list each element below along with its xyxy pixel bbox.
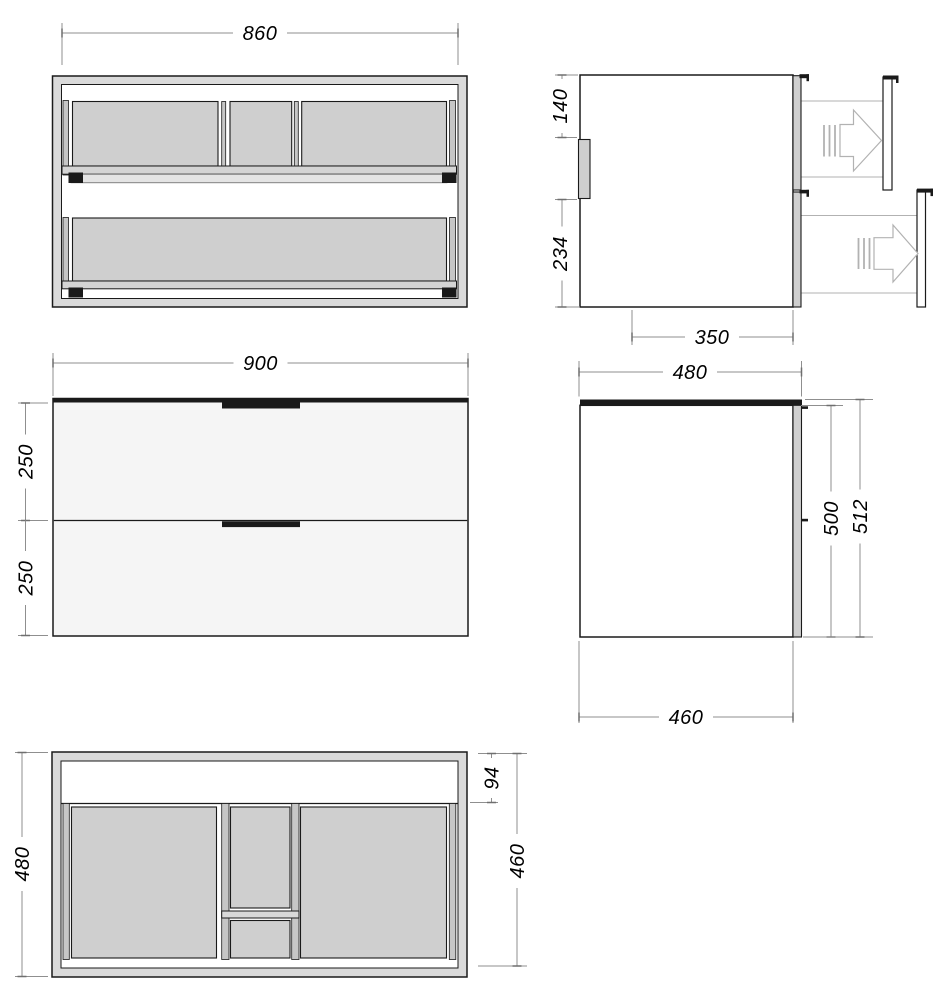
- upper-drawer-panel-right: [302, 102, 447, 167]
- dim-tick: [827, 405, 836, 407]
- dim-tick: [792, 333, 794, 342]
- dim-label: 512: [850, 499, 872, 534]
- front-edge-lower: [793, 192, 801, 307]
- dim-label-group: 480: [12, 837, 34, 891]
- cabinet-drawing: 860 140: [0, 0, 944, 1007]
- dim-tick: [558, 306, 567, 308]
- slide-bracket: [442, 288, 457, 298]
- arrow-speed-lines: [859, 238, 870, 269]
- dim-tick: [61, 29, 63, 38]
- plan-panel-right: [301, 807, 447, 958]
- cap-hook: [931, 189, 934, 197]
- dim-tick: [18, 752, 27, 754]
- dim-side-overall-depth: 480: [578, 361, 802, 397]
- dim-label-group: 250: [16, 551, 38, 605]
- extended-front-lower: [917, 190, 926, 307]
- front-edge-upper: [793, 76, 801, 190]
- upper-drawer-panel-center: [230, 102, 292, 167]
- dim-front-open-width: 860: [61, 23, 459, 65]
- dim-label-group: 500: [821, 492, 843, 546]
- dim-label: 900: [243, 353, 278, 375]
- dim-tick: [467, 359, 469, 368]
- lower-handle-notch: [222, 521, 300, 527]
- dim-tick: [631, 333, 633, 342]
- center-cross-divider: [222, 911, 299, 918]
- dim-tick: [792, 713, 794, 722]
- dim-label-group: 234: [550, 227, 572, 281]
- slide-bracket: [69, 288, 84, 298]
- dim-label-group: 512: [850, 490, 872, 544]
- upper-handle-notch: [222, 402, 300, 408]
- dim-label: 350: [695, 327, 730, 349]
- dim-tick: [578, 368, 580, 377]
- dim-label: 94: [482, 766, 504, 789]
- lower-drawer-panel: [73, 218, 447, 281]
- dim-label-group: 250: [16, 435, 38, 489]
- dim-side-body-depth: 460: [578, 641, 794, 729]
- dim-label: 480: [673, 362, 708, 384]
- dim-front-overall-width: 900: [52, 353, 469, 396]
- dim-tick: [513, 965, 522, 967]
- countertop-slab: [580, 400, 802, 406]
- drawer-slide-rail: [450, 218, 456, 289]
- dim-label-group: 140: [550, 79, 572, 133]
- upper-drawer-rail: [62, 166, 457, 174]
- countertop-edge: [53, 399, 468, 403]
- front-view-open: 860: [53, 23, 468, 307]
- dim-plan-overall-depth: 480: [12, 752, 48, 978]
- dim-tick: [801, 368, 803, 377]
- drawer-slide-rail: [63, 101, 69, 176]
- dim-tick: [578, 713, 580, 722]
- dim-label: 460: [507, 844, 529, 879]
- plan-panel-left: [72, 807, 217, 958]
- dim-label: 500: [821, 501, 843, 536]
- dim-side-extended-upper: 140: [550, 74, 578, 138]
- cabinet-front: [53, 399, 468, 637]
- dim-label: 860: [243, 23, 278, 45]
- slide-bracket: [442, 173, 457, 184]
- dim-tick: [21, 402, 30, 404]
- dim-tick: [52, 359, 54, 368]
- front-lip-mid: [802, 519, 809, 522]
- dim-plan-front-rail: 94: [470, 753, 527, 804]
- dim-tick: [558, 137, 567, 139]
- arrow-icon: [874, 225, 918, 282]
- dim-side-extended-lower: 234: [550, 199, 580, 308]
- front-lip-upper: [802, 406, 809, 409]
- cap-hook: [896, 76, 899, 84]
- cabinet-side-outline: [580, 75, 793, 307]
- cabinet-side-outline: [580, 405, 793, 637]
- dim-label: 480: [12, 847, 34, 882]
- dim-label: 234: [550, 236, 572, 272]
- dim-tick: [487, 802, 496, 804]
- dim-label: 460: [669, 707, 704, 729]
- slide-bracket: [69, 173, 84, 184]
- dim-tick: [856, 399, 865, 401]
- side-rail: [449, 804, 456, 960]
- center-divider-rail: [222, 804, 229, 960]
- arrow-icon: [840, 110, 882, 171]
- pull-out-arrow-lower: [859, 225, 919, 282]
- dim-tick: [856, 636, 865, 638]
- top-lip-hook: [807, 74, 810, 81]
- dim-label-group: 460: [507, 834, 529, 888]
- dim-label: 250: [16, 444, 38, 480]
- dim-tick: [21, 635, 30, 637]
- dim-tick: [558, 199, 567, 201]
- dim-label: 250: [16, 561, 38, 597]
- side-view-extended: 140 234 350: [550, 74, 933, 349]
- side-rail: [63, 804, 69, 960]
- upper-drawer-slide-band: [71, 174, 447, 183]
- mid-lip-hook: [807, 190, 810, 197]
- technical-drawing-canvas: 860 140: [0, 0, 944, 1007]
- upper-drawer-panel-left: [73, 102, 219, 167]
- dim-tick: [558, 74, 567, 76]
- dim-tick: [513, 753, 522, 755]
- dim-front-upper-drawer: 250: [16, 402, 49, 521]
- dim-front-lower-drawer: 250: [16, 521, 49, 637]
- drawer-front-edge: [793, 405, 802, 637]
- dim-tick: [487, 753, 496, 755]
- center-divider-rail: [292, 804, 299, 960]
- arrow-speed-lines: [824, 125, 835, 157]
- dim-tick: [457, 29, 459, 38]
- dim-side-extended-depth: 350: [631, 310, 794, 349]
- panel-divider: [294, 102, 298, 167]
- plan-view: 480 94 460: [12, 752, 529, 978]
- side-view-closed: 480 500 512 460: [578, 361, 873, 729]
- dim-label-group: 94: [482, 758, 504, 798]
- panel-divider: [222, 102, 226, 167]
- dim-tick: [18, 976, 27, 978]
- plan-panel-center-lower: [231, 921, 291, 959]
- dim-label: 140: [550, 89, 572, 124]
- pull-out-arrow-upper: [824, 110, 882, 171]
- wall-mount-bracket: [579, 140, 591, 199]
- plan-panel-center-upper: [231, 807, 291, 908]
- front-view-closed: 900 250 250: [16, 353, 469, 636]
- drawer-slide-rail: [63, 218, 69, 289]
- extended-front-upper: [883, 77, 892, 190]
- lower-drawer-rail: [62, 281, 457, 289]
- drawer-slide-rail: [450, 101, 456, 176]
